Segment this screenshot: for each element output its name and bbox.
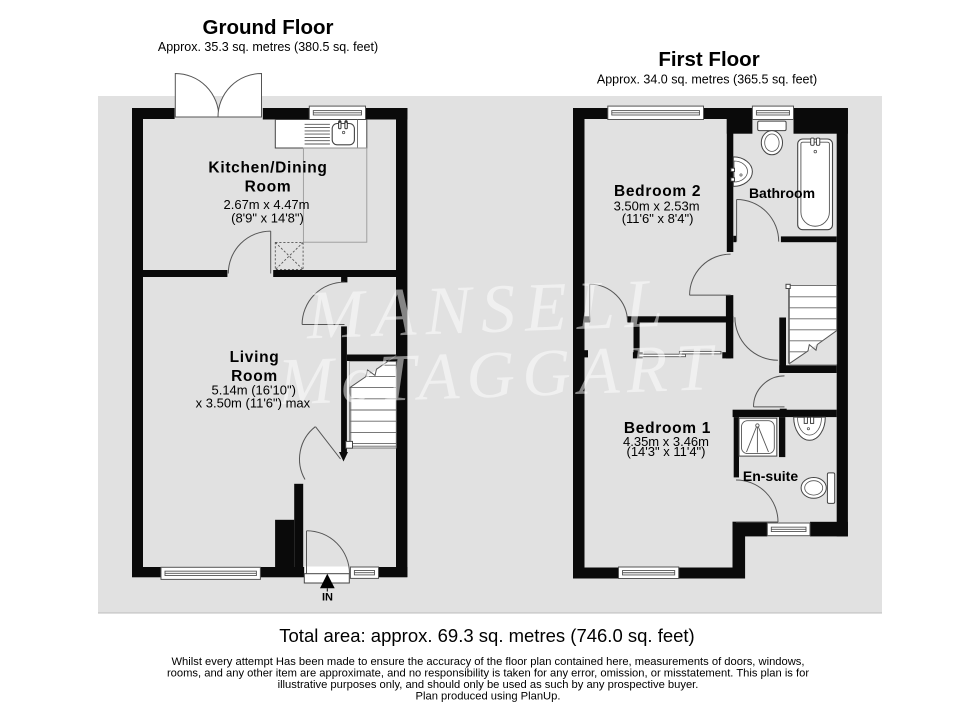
svg-text:First Floor: First Floor <box>658 48 759 71</box>
svg-text:Ground Floor: Ground Floor <box>203 16 334 39</box>
svg-text:Room: Room <box>245 179 292 196</box>
svg-text:Bathroom: Bathroom <box>749 185 815 201</box>
svg-text:Kitchen/Dining: Kitchen/Dining <box>208 160 327 177</box>
svg-text:Bedroom 2: Bedroom 2 <box>614 183 701 200</box>
svg-text:IN: IN <box>322 592 333 604</box>
svg-text:Approx. 34.0 sq. metres (365.5: Approx. 34.0 sq. metres (365.5 sq. feet) <box>597 72 817 86</box>
svg-text:Living: Living <box>230 349 280 366</box>
svg-text:McTAGGART: McTAGGART <box>275 330 720 419</box>
svg-text:Approx. 35.3 sq. metres (380.5: Approx. 35.3 sq. metres (380.5 sq. feet) <box>158 40 378 54</box>
svg-text:En-suite: En-suite <box>743 468 798 484</box>
svg-text:(8'9" x 14'8"): (8'9" x 14'8") <box>231 211 304 226</box>
svg-text:(14'3" x 11'4"): (14'3" x 11'4") <box>627 444 706 459</box>
svg-text:rooms, and any other item are: rooms, and any other item are approximat… <box>167 668 809 680</box>
svg-text:x 3.50m (11'6") max: x 3.50m (11'6") max <box>196 396 311 411</box>
svg-text:Whilst every attempt Has been: Whilst every attempt Has been made to en… <box>171 656 804 668</box>
svg-text:Total area: approx. 69.3 sq. m: Total area: approx. 69.3 sq. metres (746… <box>279 625 694 646</box>
svg-text:Plan produced using PlanUp.: Plan produced using PlanUp. <box>416 691 561 703</box>
svg-text:illustrative purposes only, an: illustrative purposes only, and should o… <box>278 679 699 691</box>
svg-text:(11'6" x 8'4"): (11'6" x 8'4") <box>622 211 694 226</box>
